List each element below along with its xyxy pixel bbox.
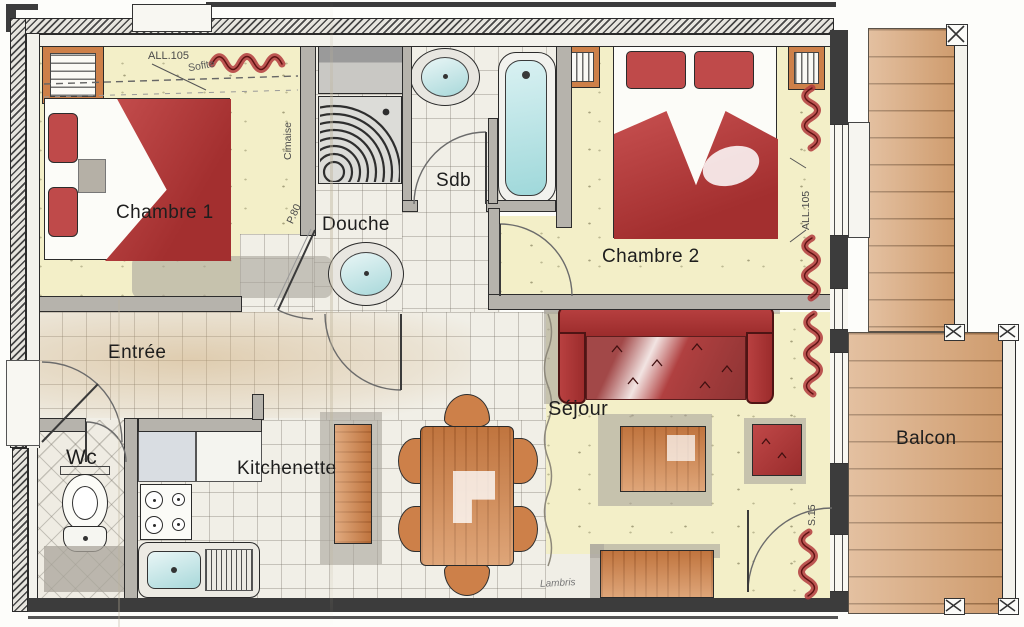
stove-burner <box>172 518 185 531</box>
basin-drain <box>364 271 369 276</box>
room-label-chambre2: Chambre 2 <box>602 246 700 268</box>
balcony-post <box>998 324 1019 341</box>
outer-wall-right <box>830 592 848 612</box>
outer-wall-corner <box>6 4 38 10</box>
sink-drainer <box>205 549 253 591</box>
blanket-fold <box>78 159 106 193</box>
wall <box>488 118 498 204</box>
facade-line <box>206 2 836 7</box>
scan-crease <box>118 300 120 627</box>
balcony-post <box>944 324 965 341</box>
bathtub-drain <box>522 71 530 79</box>
balcony-post <box>998 598 1019 615</box>
double-bed-chambre2 <box>613 46 777 238</box>
annotation-all105-right: ALL.105 <box>800 191 812 230</box>
post-x-icon <box>999 325 1016 338</box>
chambre2-door-recess-floor <box>498 216 556 302</box>
outer-wall-bottom <box>28 598 838 612</box>
pillow <box>694 51 754 89</box>
wall <box>556 44 572 228</box>
toilet-bowl-inner <box>72 486 98 520</box>
sofa <box>558 306 774 404</box>
balcony-deck-lower <box>848 332 1004 614</box>
coffee-table <box>620 426 706 492</box>
balcony-door <box>830 288 848 330</box>
pillow <box>48 113 78 163</box>
pouf <box>752 424 802 476</box>
wall <box>488 294 836 310</box>
room-label-balcon: Balcon <box>896 428 957 450</box>
floor-plan: Chambre 1 Douche Sdb Chambre 2 Entrée Wc… <box>0 0 1024 627</box>
outer-wall-right <box>830 30 848 124</box>
window <box>830 124 848 236</box>
outer-wall-right <box>830 464 848 534</box>
stove-burner <box>172 493 185 506</box>
table-highlight <box>667 435 695 461</box>
pillow <box>626 51 686 89</box>
wall <box>138 418 262 432</box>
louvre-slats <box>794 52 819 84</box>
room-label-entree: Entrée <box>108 342 166 364</box>
basin-drain <box>443 74 448 79</box>
outer-wall-band <box>28 448 38 600</box>
duvet <box>614 111 778 239</box>
room-label-wc: Wc <box>66 446 97 470</box>
window-louvre <box>788 46 825 90</box>
balcony-door <box>830 534 848 592</box>
double-bed-chambre1 <box>44 98 230 260</box>
sofa-arm <box>558 332 586 404</box>
post-x-icon <box>947 25 965 43</box>
entry-door-opening <box>6 360 40 446</box>
stove-burner <box>145 516 163 534</box>
kitchen-appliance <box>138 428 196 482</box>
scan-crease <box>330 0 333 627</box>
wall <box>402 200 418 212</box>
room-label-sdb: Sdb <box>436 170 471 192</box>
window <box>830 352 848 464</box>
room-label-kitchenette: Kitchenette <box>237 458 336 480</box>
balcony-railing <box>1002 332 1016 614</box>
outer-wall-right <box>830 236 848 288</box>
corridor-floor <box>402 212 500 312</box>
washbasin-douche <box>328 242 404 306</box>
wall <box>124 418 138 600</box>
annotation-s15: S.15 <box>806 504 818 526</box>
kitchen-sink <box>138 542 260 598</box>
bathtub-basin <box>505 60 547 196</box>
toilet-flush-dot <box>83 536 88 541</box>
kitchen-bar <box>334 424 372 544</box>
shadow <box>132 256 332 298</box>
room-label-chambre1: Chambre 1 <box>116 202 214 224</box>
wall <box>252 394 264 420</box>
wall <box>38 418 86 432</box>
outer-wall-right <box>830 330 848 352</box>
balcony-railing <box>954 28 968 332</box>
wardrobe-panel <box>50 53 96 97</box>
annotation-lambris: Lambris <box>540 577 576 590</box>
window-bay-chambre2 <box>848 122 870 238</box>
annotation-all105-top: ALL.105 <box>148 50 189 62</box>
balcony-post <box>944 598 965 615</box>
table-highlight <box>453 471 495 523</box>
balcony-post <box>946 24 968 46</box>
balcony-deck-upper <box>868 28 956 332</box>
post-x-icon <box>945 599 962 612</box>
pillow <box>48 187 78 237</box>
annotation-cimaise: Cimaise <box>282 122 294 160</box>
wall <box>402 44 412 212</box>
room-label-sejour: Séjour <box>548 398 608 421</box>
duvet <box>97 99 231 261</box>
dining-table <box>420 426 514 566</box>
wall <box>488 208 500 300</box>
sofa-seat <box>586 336 746 400</box>
drain <box>383 109 390 116</box>
outer-wall-band <box>14 34 834 47</box>
sideboard <box>600 550 714 598</box>
outer-wall-bottom-line <box>28 616 838 619</box>
wall <box>38 296 242 312</box>
bathtub <box>498 52 556 204</box>
wc-mat <box>44 546 126 592</box>
washbasin-sdb <box>410 48 480 106</box>
sink-drain <box>171 567 177 573</box>
window-bay-top <box>132 4 212 32</box>
post-x-icon <box>999 599 1016 612</box>
post-x-icon <box>945 325 962 338</box>
wardrobe <box>42 46 104 104</box>
stove-burner <box>145 491 163 509</box>
louvre-slats <box>569 52 594 82</box>
outer-wall-hatch <box>12 448 28 612</box>
sofa-back <box>558 306 774 338</box>
sofa-arm <box>746 332 774 404</box>
